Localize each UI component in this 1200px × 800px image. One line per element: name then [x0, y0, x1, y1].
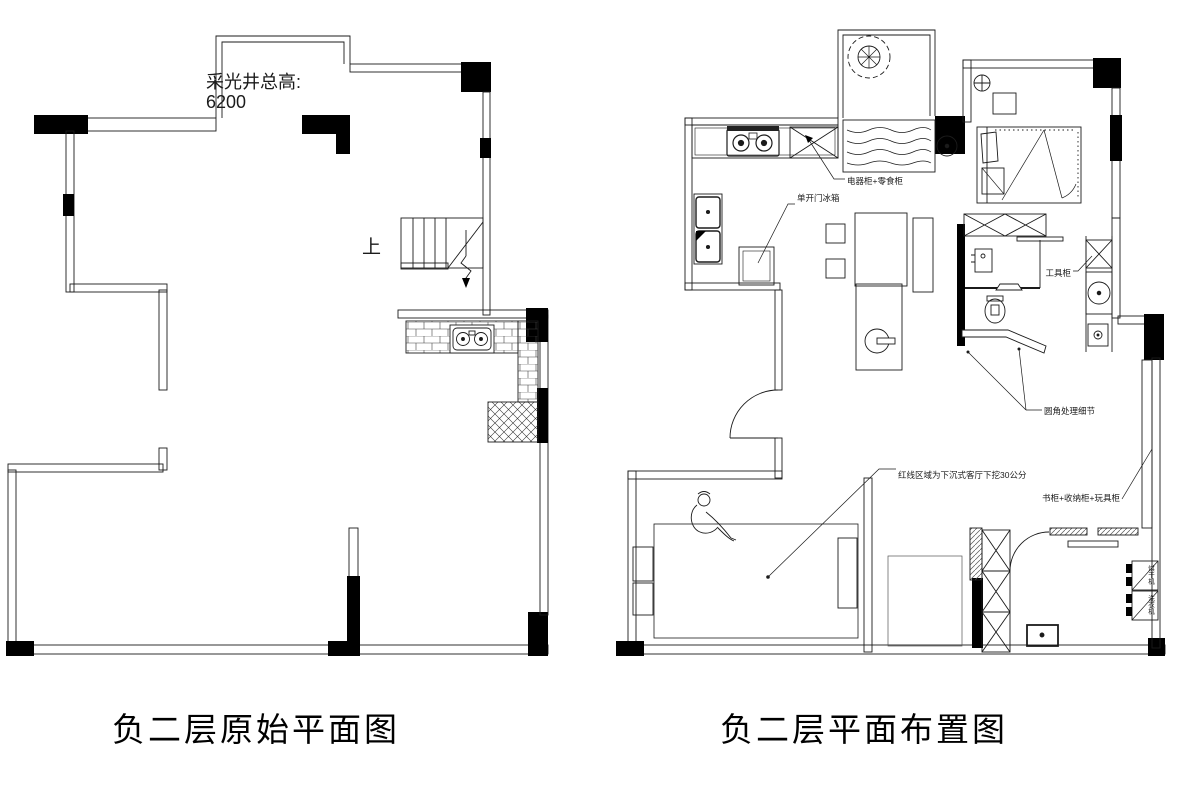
tool-cabinet-icon	[1086, 240, 1112, 268]
fridge-icon	[739, 247, 774, 285]
right-floor-plan: 电器柜+零食柜 单开门冰箱 工具柜 圆角处理细节 红线区域为下沉式客厅下挖30公…	[616, 30, 1165, 656]
bedroom	[937, 75, 1081, 241]
skylight-note-line1: 采光井总高:	[206, 72, 301, 92]
nightstand-icon	[993, 93, 1016, 114]
shower-door-icon	[996, 284, 1022, 290]
wardrobe-icon	[964, 214, 1046, 236]
rounded-corner-label: 圆角处理细节	[1044, 406, 1096, 416]
stool-icon	[826, 224, 845, 243]
kitchen-counter	[406, 321, 538, 442]
sunken-red-line	[654, 524, 858, 638]
bench-seat-icon	[913, 218, 933, 292]
playroom	[982, 530, 1158, 652]
wall-shelf-icon	[1068, 541, 1118, 547]
dryer-label: 烘干机	[1147, 564, 1155, 586]
living-room	[633, 492, 962, 647]
storage-wall-label: 书柜+收纳柜+玩具柜	[1042, 493, 1120, 503]
rounded-corner-wall	[962, 330, 1046, 353]
bath-sink-icon	[971, 249, 992, 272]
plans-drawing: 采光井总高: 6200 上	[0, 0, 1200, 800]
ceiling-light-icon	[974, 75, 990, 91]
plant-icon	[848, 36, 890, 78]
island-dining	[826, 213, 933, 370]
bed-icon	[977, 127, 1081, 203]
appliance-cabinet-label: 电器柜+零食柜	[847, 176, 903, 186]
stairs-up-label: 上	[362, 236, 381, 258]
sink-cabinet-icon	[694, 194, 722, 264]
sunken-area-label: 红线区域为下沉式客厅下挖30公分	[898, 470, 1027, 480]
skylight-note-line2: 6200	[206, 92, 246, 112]
tool-cabinet-label: 工具柜	[1045, 268, 1071, 278]
right-plan-title: 负二层平面布置图	[720, 703, 1008, 751]
stool-icon	[826, 259, 845, 278]
appliance-cabinet-icon	[790, 127, 838, 158]
kitchen-layout	[692, 36, 935, 285]
left-floor-plan: 采光井总高: 6200 上	[6, 36, 548, 656]
left-plan-title: 负二层原始平面图	[112, 703, 400, 751]
water-heater-icon	[1086, 272, 1112, 314]
bathroom	[962, 240, 1046, 353]
cooktop-icon	[727, 126, 779, 156]
storage-cabinet-band	[1142, 360, 1152, 528]
floor-box-icon	[1027, 625, 1058, 646]
stairs	[401, 218, 483, 288]
annotations: 电器柜+零食柜 单开门冰箱 工具柜 圆角处理细节 红线区域为下沉式客厅下挖30公…	[758, 135, 1155, 616]
floor-drain-hatch	[488, 402, 538, 442]
person-figure	[691, 492, 736, 542]
door-arc	[1010, 532, 1049, 571]
bookcase-icon	[982, 530, 1010, 652]
utility-column	[1086, 236, 1152, 528]
floor-plan-sheet: 采光井总高: 6200 上	[0, 0, 1200, 800]
bench-icon	[843, 120, 935, 172]
door-arc	[730, 390, 778, 438]
drain-box-icon	[1088, 324, 1108, 346]
fridge-label: 单开门冰箱	[797, 193, 840, 203]
stove-icon	[450, 325, 494, 353]
toilet-icon	[985, 296, 1005, 323]
washer-label: 洗衣机	[1147, 594, 1155, 616]
